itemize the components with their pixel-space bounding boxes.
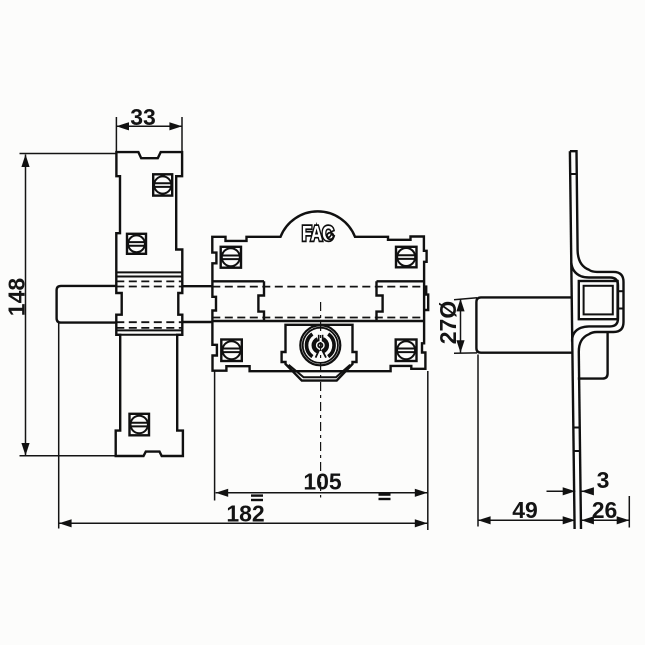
svg-text:27Ø: 27Ø [435, 301, 461, 344]
svg-text:3: 3 [597, 467, 610, 493]
svg-text:26: 26 [592, 497, 618, 523]
svg-text:105: 105 [303, 469, 342, 495]
svg-text:49: 49 [512, 497, 538, 523]
